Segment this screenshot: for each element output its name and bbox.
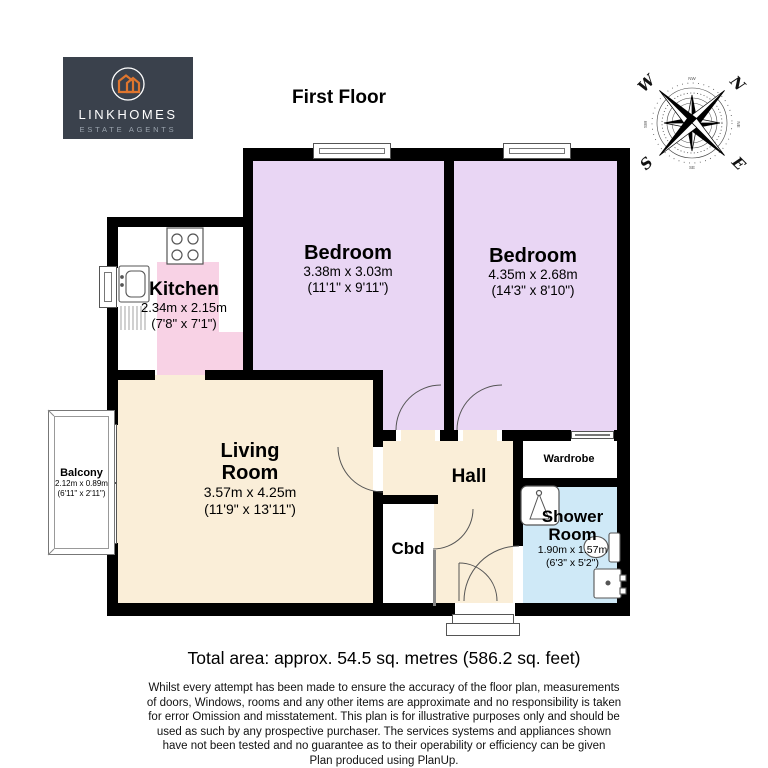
floorplan-page: LINKHOMES ESTATE AGENTS First Floor W N … <box>0 0 768 768</box>
room-dims-m: 3.57m x 4.25m <box>155 484 345 501</box>
room-name: Bedroom <box>258 242 438 264</box>
room-dims-m: 2.12m x 0.89m <box>50 479 113 489</box>
room-dims-m: 1.90m x 1.57m <box>523 544 622 557</box>
room-dims-ft: (11'9" x 13'11") <box>155 501 345 518</box>
room-name: Living <box>155 440 345 462</box>
living-room-label: Living Room 3.57m x 4.25m (11'9" x 13'11… <box>155 440 345 518</box>
bedroom1-door-arc <box>396 385 441 430</box>
basin-icon <box>594 569 626 598</box>
bedroom2-door-arc <box>457 385 502 430</box>
total-area-text: Total area: approx. 54.5 sq. metres (586… <box>0 648 768 669</box>
disclaimer-line: Plan produced using PlanUp. <box>84 754 684 768</box>
disclaimer-line: used as such by any prospective purchase… <box>84 725 684 740</box>
bedroom2-label: Bedroom 4.35m x 2.68m (14'3" x 8'10") <box>447 245 619 299</box>
disclaimer-line: Whilst every attempt has been made to en… <box>84 681 684 696</box>
room-dims-m: 3.38m x 3.03m <box>258 264 438 280</box>
hall-label: Hall <box>424 466 514 487</box>
room-name: Shower <box>523 508 622 526</box>
room-name: Room <box>523 526 622 544</box>
room-dims-m: 2.34m x 2.15m <box>120 300 248 316</box>
room-name: Bedroom <box>447 245 619 267</box>
disclaimer-line: for error Omission and misstatement. Thi… <box>84 710 684 725</box>
disclaimer-line: have not been tested and no guarantee as… <box>84 739 684 754</box>
cbd-door-arc <box>433 509 473 549</box>
kitchen-label: Kitchen 2.34m x 2.15m (7'8" x 7'1") <box>120 279 248 332</box>
cbd-label: Cbd <box>383 540 433 558</box>
room-dims-m: 4.35m x 2.68m <box>447 267 619 283</box>
room-name: Kitchen <box>120 279 248 300</box>
room-dims-ft: (11'1" x 9'11") <box>258 280 438 296</box>
shower-door-arc <box>464 546 519 601</box>
room-dims-ft: (6'11" x 2'11") <box>50 489 113 499</box>
bedroom1-label: Bedroom 3.38m x 3.03m (11'1" x 9'11") <box>258 242 438 296</box>
wardrobe-label: Wardrobe <box>520 453 618 465</box>
balcony-label: Balcony 2.12m x 0.89m (6'11" x 2'11") <box>50 467 113 498</box>
hob-icon <box>167 228 203 264</box>
shower-room-label: Shower Room 1.90m x 1.57m (6'3" x 5'2") <box>523 508 622 570</box>
disclaimer-text: Whilst every attempt has been made to en… <box>84 681 684 768</box>
room-name: Balcony <box>50 467 113 479</box>
room-name: Room <box>155 462 345 484</box>
room-dims-ft: (14'3" x 8'10") <box>447 283 619 299</box>
room-dims-ft: (7'8" x 7'1") <box>120 316 248 332</box>
room-dims-ft: (6'3" x 5'2") <box>523 557 622 570</box>
disclaimer-line: of doors, Windows, rooms and any other i… <box>84 696 684 711</box>
